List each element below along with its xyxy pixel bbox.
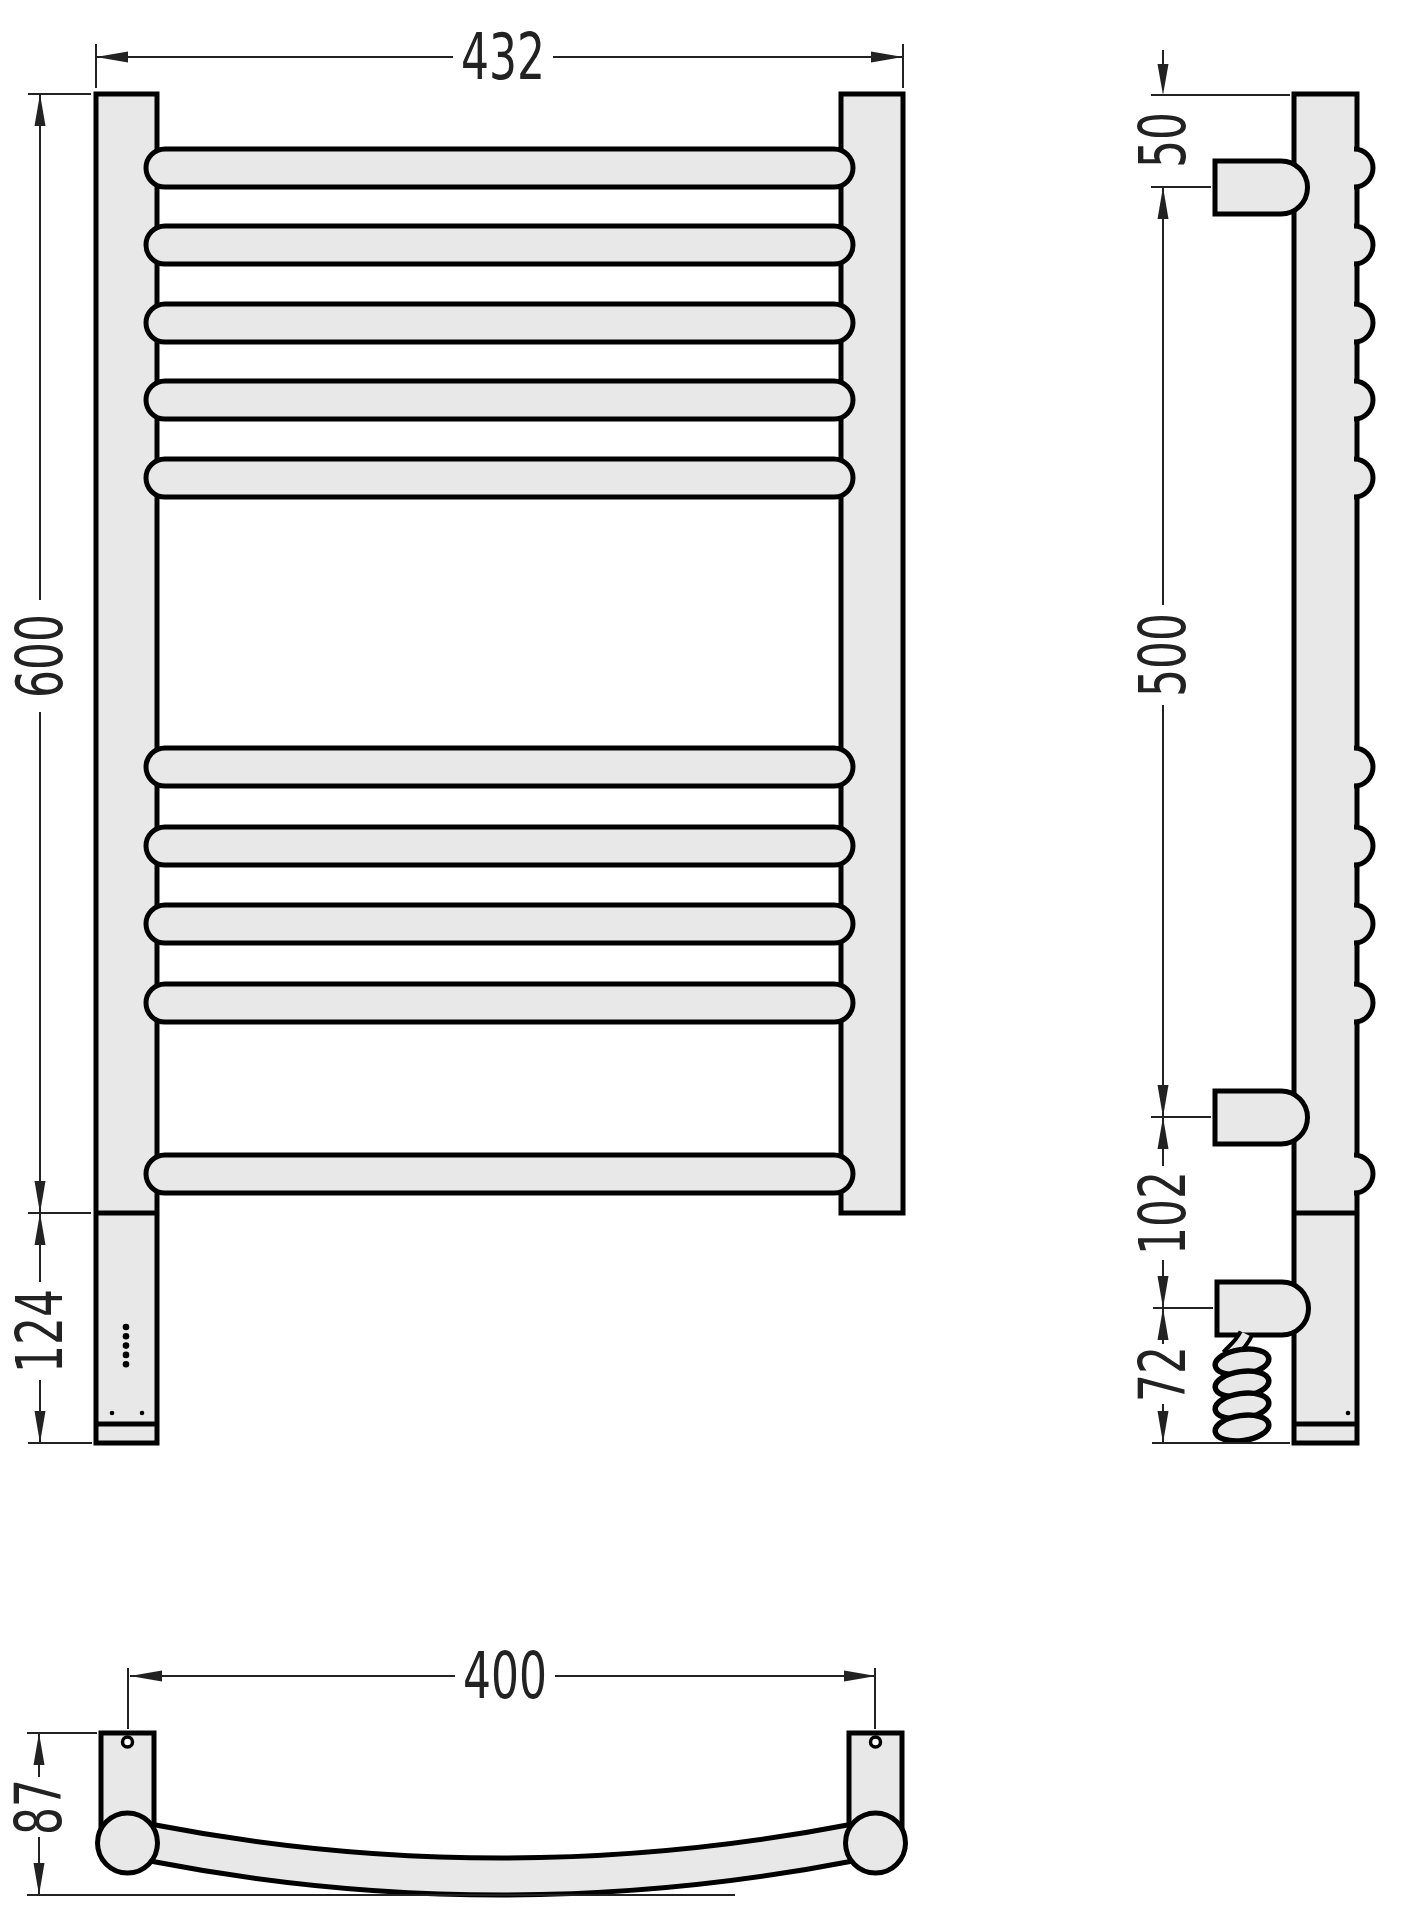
mount-hole-left (123, 1737, 133, 1747)
side-cap-screw-dot (1346, 1411, 1351, 1416)
bar-end (1354, 226, 1373, 264)
towel-bar (146, 748, 853, 786)
dim-label-124: 124 (3, 1289, 77, 1373)
dim-label-50: 50 (1126, 112, 1200, 168)
dimensions: 432 600 124 50 (2, 20, 1290, 1895)
bar-end (1354, 984, 1373, 1022)
curved-bar-plan (150, 1824, 853, 1895)
plan-view (98, 1733, 906, 1895)
bar-end (1354, 459, 1373, 497)
towel-rail-drawing: 432 600 124 50 (0, 0, 1402, 1920)
drawing-canvas: 432 600 124 50 (0, 0, 1402, 1920)
heating-cartridge (1217, 1282, 1309, 1335)
dim-label-72: 72 (1126, 1346, 1200, 1402)
wall-bracket-bottom (1215, 1091, 1308, 1144)
front-view (96, 94, 903, 1443)
bar-end (1354, 1155, 1373, 1193)
side-view (1214, 94, 1373, 1444)
bar-end (1354, 381, 1373, 419)
towel-bar (146, 149, 853, 187)
towel-bar (146, 984, 853, 1022)
towel-bar (146, 381, 853, 419)
plan-post-right (846, 1813, 906, 1873)
bar-end (1354, 304, 1373, 342)
dim-label-102: 102 (1126, 1171, 1200, 1255)
towel-bar (146, 905, 853, 943)
dim-front-height: 600 (3, 94, 91, 1213)
towel-bar (146, 827, 853, 865)
plan-post-left (98, 1813, 158, 1873)
dim-label-400: 400 (463, 1639, 547, 1713)
dim-label-432: 432 (461, 20, 545, 94)
bar-end (1354, 827, 1373, 865)
bar-end (1354, 748, 1373, 786)
dim-plan-width: 400 (128, 1639, 876, 1729)
dim-label-87: 87 (2, 1779, 76, 1835)
dim-side-bracket-span: 500 (1126, 187, 1211, 1117)
mount-hole-right (871, 1737, 881, 1747)
dim-side-lower-offset: 102 (1126, 1117, 1213, 1308)
towel-bar (146, 459, 853, 497)
side-post (1294, 94, 1357, 1443)
dim-front-bottom-section: 124 (3, 1213, 92, 1443)
towel-bar (146, 226, 853, 264)
dim-label-500: 500 (1126, 613, 1200, 697)
dim-front-width: 432 (96, 20, 903, 94)
bar-end (1354, 149, 1373, 187)
dim-label-600: 600 (3, 614, 77, 698)
coiled-cable (1214, 1334, 1271, 1444)
towel-bar (146, 1155, 853, 1193)
wall-bracket-top (1215, 161, 1308, 214)
right-post (841, 94, 903, 1213)
bar-end (1354, 905, 1373, 943)
towel-bar (146, 304, 853, 342)
